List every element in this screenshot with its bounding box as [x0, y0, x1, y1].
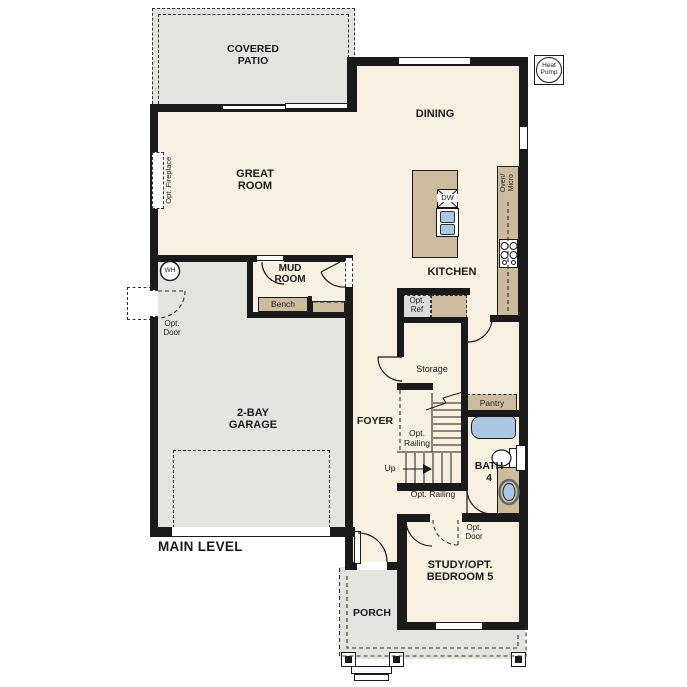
garage-door-opening [172, 527, 330, 537]
wall-study-top-west-piece [397, 514, 430, 522]
wall-garage-east [345, 255, 353, 570]
opt-door-opening [150, 290, 158, 317]
porch-step-upper [351, 666, 392, 674]
cooktop [499, 239, 518, 268]
label-opt-door-garage: Opt. Door [158, 320, 186, 338]
island-sink-bowl-top [440, 211, 455, 223]
label-garage: 2-BAY GARAGE [225, 407, 281, 432]
wall-kitchen-niche-top [397, 288, 470, 295]
front-door-leaf [354, 531, 361, 564]
label-great-room: GREAT ROOM [230, 168, 280, 193]
label-bench: Bench [260, 300, 306, 310]
label-kitchen: KITCHEN [417, 266, 487, 278]
sliding-door-panel-right [285, 103, 348, 109]
label-opt-fireplace: Opt. Fireplace [165, 150, 173, 210]
opt-door-stoop [127, 287, 152, 320]
label-dishwasher: DW [437, 194, 458, 202]
wall-pantry-bottom [461, 410, 528, 417]
label-heat-pump: Heat Pump [534, 62, 564, 77]
kitchen-niche-counter [431, 295, 467, 318]
bathtub [471, 416, 516, 439]
window-dining-top [398, 57, 471, 65]
wall-bath-bottom [462, 513, 528, 522]
porch-column-left [341, 652, 356, 667]
wall-kitchen-niche-bottom [397, 317, 468, 323]
window-study-bottom [435, 622, 483, 630]
wall-mud-west [247, 255, 253, 318]
label-foyer: FOYER [352, 416, 398, 428]
label-opt-door-study: Opt. Door [460, 524, 488, 542]
label-study: STUDY/OPT. BEDROOM 5 [421, 559, 499, 584]
label-main-level: MAIN LEVEL [158, 539, 268, 554]
window-dining-right [519, 126, 528, 150]
label-mud-room: MUD ROOM [268, 263, 312, 285]
wall-counter-end [490, 315, 528, 322]
mud-door-leaf [256, 255, 284, 261]
floor-plan: COVERED PATIO Heat Pump DINING GREAT ROO… [0, 0, 687, 687]
wall-storage-west [397, 288, 404, 357]
porch-slab-bottom [397, 628, 525, 659]
porch-step-lower [354, 674, 389, 681]
wall-mud-bottom [247, 312, 353, 318]
mud-cased-opening [345, 258, 353, 287]
label-opt-ref: Opt. Ref [404, 297, 430, 315]
label-up: Up [380, 464, 400, 474]
label-opt-railing-lower: Opt. Railing [398, 490, 468, 500]
front-door-opening [357, 562, 387, 570]
opt-fireplace-box [152, 152, 164, 209]
label-water-heater: WH [160, 267, 180, 274]
label-storage: Storage [407, 364, 457, 374]
bench-closet-divider [308, 296, 312, 313]
label-covered-patio: COVERED PATIO [218, 44, 288, 68]
wall-study-west [397, 515, 407, 630]
porch-column-right [511, 652, 526, 667]
island-sink-bowl-bottom [440, 224, 455, 235]
wall-storage-bottom [397, 383, 433, 390]
label-oven-micro: Oven/ Micro [500, 165, 516, 201]
label-porch: PORCH [348, 608, 396, 620]
porch-column-mid [389, 652, 404, 667]
label-dining: DINING [400, 108, 470, 120]
label-bath-4: BATH 4 [471, 461, 507, 485]
sliding-door-panel-left [222, 105, 286, 110]
garage-door-dashed-outline [173, 450, 330, 528]
label-pantry: Pantry [467, 399, 517, 409]
label-opt-railing-upper: Opt. Railing [399, 429, 435, 448]
